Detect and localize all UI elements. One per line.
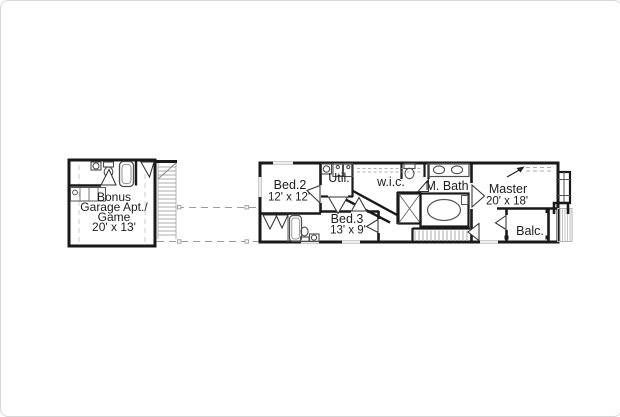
room-dims-bed2: 12' x 12' bbox=[268, 192, 310, 204]
room-label-bed2: Bed.2 bbox=[274, 179, 307, 192]
garage-staircase bbox=[155, 162, 177, 240]
room-dims-master: 20' x 18' bbox=[486, 196, 528, 208]
room-dims-bed3: 13' x 9' bbox=[330, 225, 366, 237]
room-label-master: Master bbox=[489, 183, 527, 196]
room-label-balc: Balc. bbox=[516, 225, 544, 238]
room-label-util: Util. bbox=[328, 172, 350, 185]
bay-window bbox=[558, 172, 570, 203]
room-dims-garage: 20' x 13' bbox=[92, 221, 136, 233]
floor-plan-screenshot: Bonus Garage Apt./ Game 20' x 13' Bed.2 … bbox=[0, 0, 620, 417]
room-label-mbath: M. Bath bbox=[425, 180, 468, 193]
room-label-wic: w.i.c. bbox=[377, 176, 405, 189]
